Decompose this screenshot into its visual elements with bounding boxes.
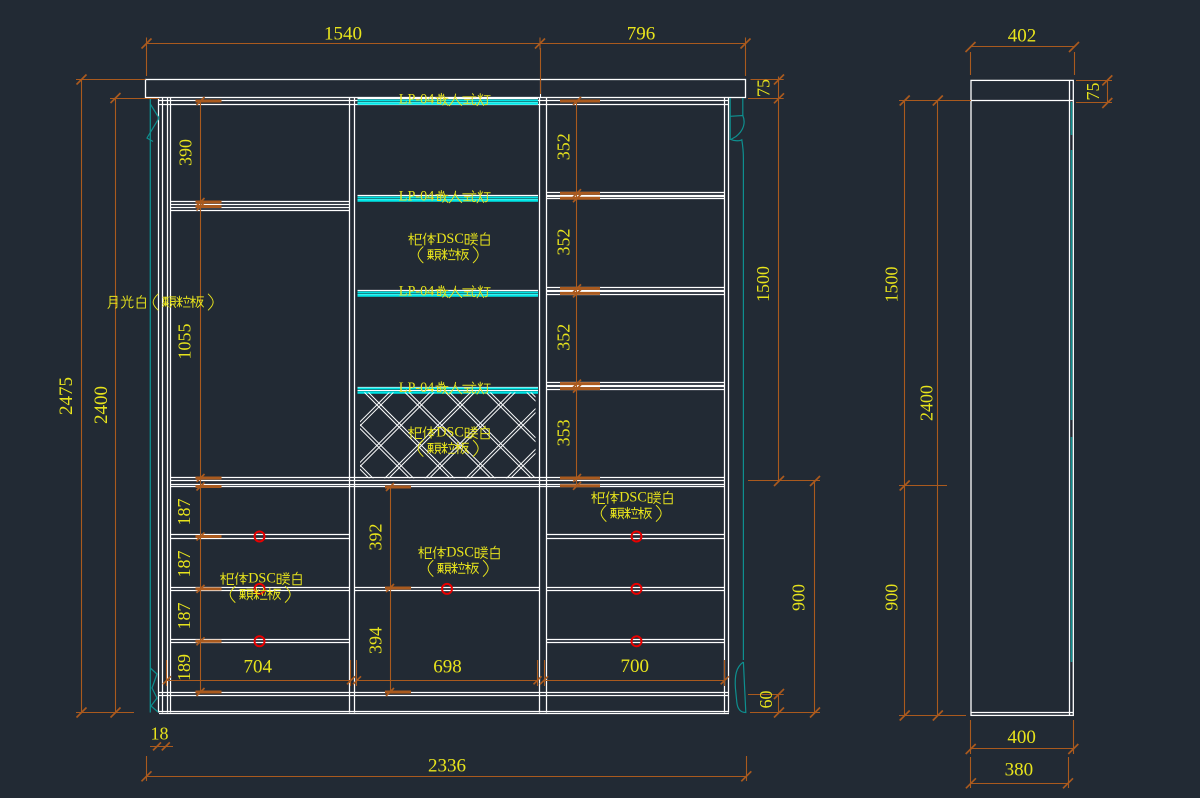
svg-text:402: 402 — [1008, 25, 1037, 46]
svg-text:DSC: DSC — [619, 489, 647, 505]
svg-text:392: 392 — [366, 524, 386, 551]
svg-text:2336: 2336 — [428, 756, 466, 777]
svg-text:LP-04: LP-04 — [399, 380, 434, 396]
svg-text:DSC: DSC — [446, 544, 474, 560]
svg-text:189: 189 — [174, 654, 194, 681]
svg-text:1500: 1500 — [753, 266, 773, 302]
svg-text:394: 394 — [366, 627, 386, 654]
svg-text:352: 352 — [554, 229, 574, 256]
svg-text:18: 18 — [151, 724, 169, 744]
svg-text:352: 352 — [554, 133, 574, 160]
svg-text:2475: 2475 — [56, 377, 77, 415]
svg-text:1500: 1500 — [882, 267, 902, 303]
svg-text:380: 380 — [1005, 760, 1034, 781]
svg-text:900: 900 — [882, 584, 902, 611]
svg-text:DSC: DSC — [436, 424, 464, 440]
svg-text:900: 900 — [789, 584, 809, 611]
svg-text:796: 796 — [627, 23, 656, 44]
svg-text:698: 698 — [433, 656, 462, 677]
svg-text:1540: 1540 — [324, 23, 362, 44]
svg-text:704: 704 — [244, 656, 273, 677]
svg-text:2400: 2400 — [91, 386, 112, 424]
svg-text:700: 700 — [620, 656, 649, 677]
svg-text:400: 400 — [1007, 727, 1036, 748]
svg-text:75: 75 — [754, 79, 774, 97]
svg-text:LP-04: LP-04 — [399, 284, 434, 300]
svg-text:60: 60 — [756, 691, 776, 709]
svg-text:187: 187 — [174, 551, 194, 578]
svg-text:390: 390 — [176, 139, 196, 166]
svg-text:352: 352 — [554, 324, 574, 351]
svg-text:2400: 2400 — [916, 385, 936, 421]
svg-text:1055: 1055 — [175, 324, 195, 360]
svg-text:75: 75 — [1083, 83, 1103, 101]
svg-text:DSC: DSC — [436, 231, 464, 247]
svg-text:353: 353 — [554, 419, 574, 446]
svg-text:LP-04: LP-04 — [399, 92, 434, 108]
svg-text:LP-04: LP-04 — [399, 189, 434, 205]
svg-text:187: 187 — [174, 603, 194, 630]
svg-text:187: 187 — [174, 499, 194, 526]
svg-text:DSC: DSC — [248, 570, 276, 586]
